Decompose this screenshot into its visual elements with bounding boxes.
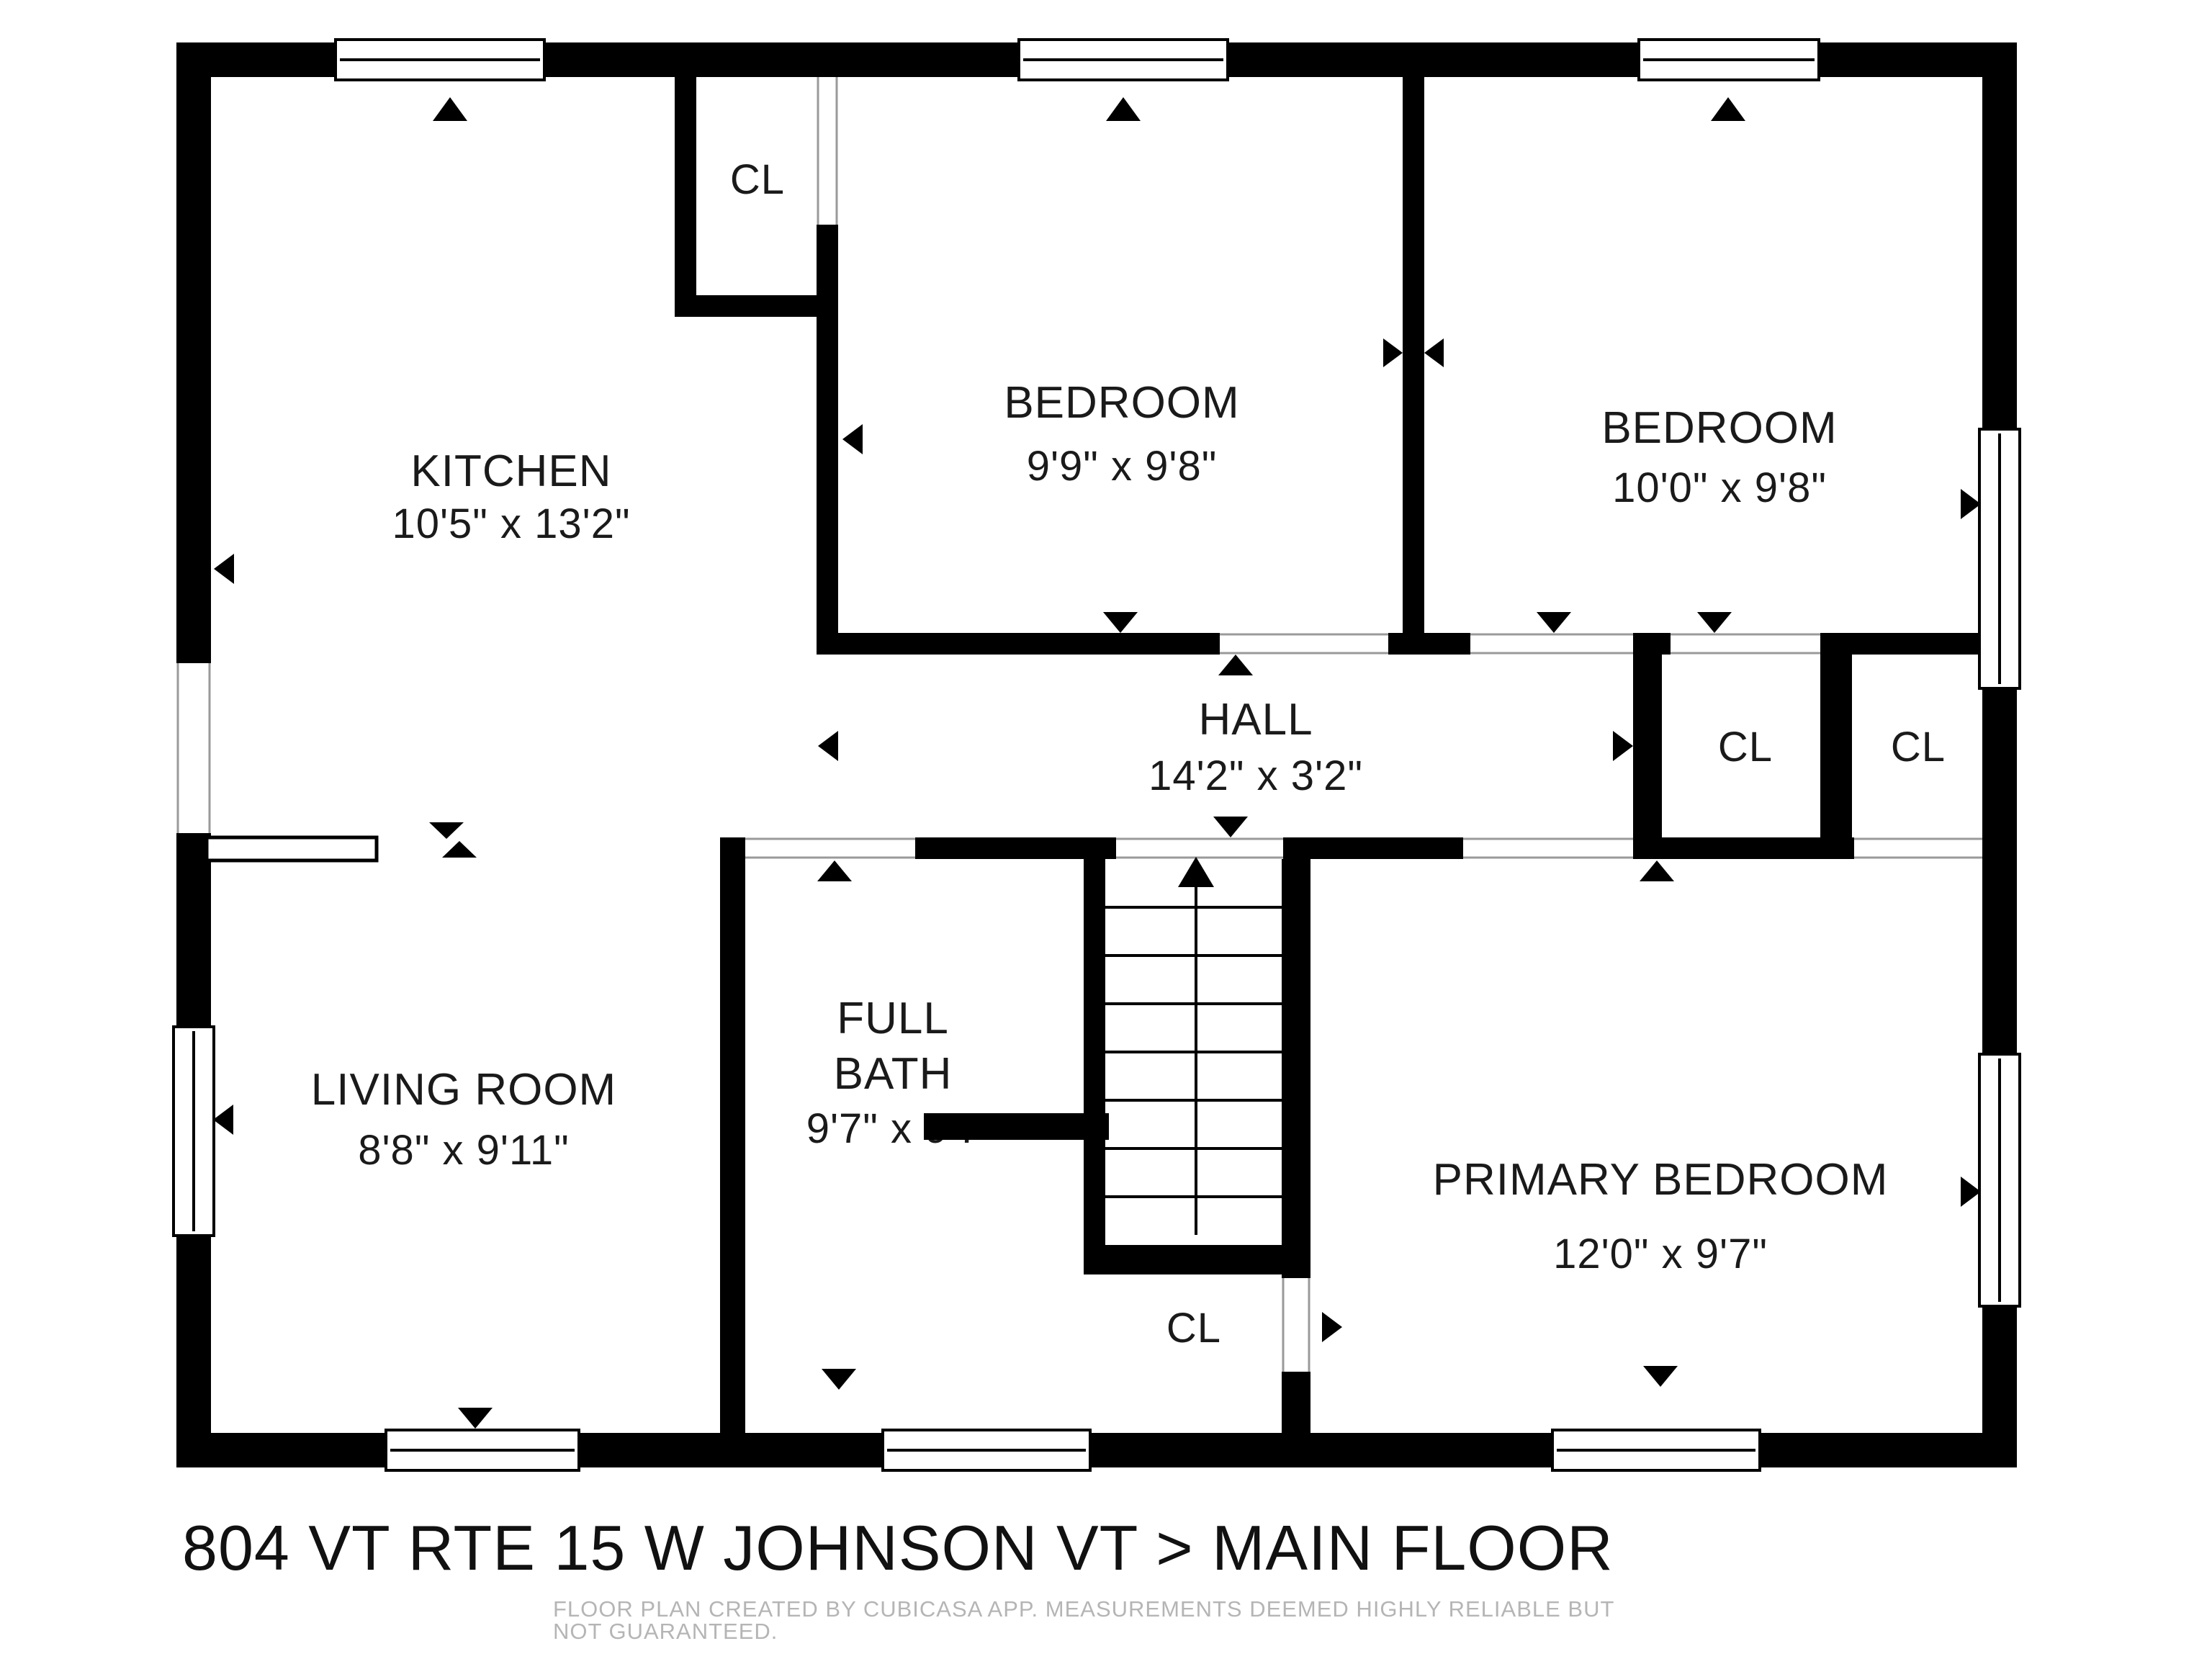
door-swing-icon (1961, 1177, 1981, 1207)
window-icon (386, 1430, 579, 1470)
door-swing-icon (1697, 612, 1732, 633)
hall-label: HALL (1198, 698, 1313, 742)
kitchen-counter (207, 837, 377, 860)
bedroom-top-dims: 9'9" x 9'8" (1027, 446, 1218, 487)
bedroom-top-label: BEDROOM (1004, 381, 1239, 426)
window-icon (1979, 1054, 2020, 1306)
page-title: 804 VT RTE 15 W JOHNSON VT > MAIN FLOOR (182, 1516, 1614, 1580)
floor-plan-drawing (0, 0, 2212, 1659)
bedroom-right-label: BEDROOM (1601, 406, 1837, 451)
window-icon (1552, 1430, 1760, 1470)
kitchen-label: KITCHEN (410, 449, 611, 494)
door-swing-icon (842, 424, 863, 454)
door-swing-icon (429, 822, 464, 839)
window-icon (1639, 40, 1819, 80)
door-swing-icon (1643, 1366, 1678, 1387)
living-room-dims: 8'8" x 9'11" (358, 1130, 570, 1172)
door-swing-icon (213, 1105, 233, 1135)
window-icon (883, 1430, 1090, 1470)
door-swing-icon (1711, 97, 1745, 121)
stairs-up-arrow-icon (1178, 857, 1214, 1235)
door-swing-icon (442, 841, 477, 858)
window-icon (1979, 429, 2020, 688)
door-swing-icon (433, 97, 467, 121)
door-swing-icon (1424, 338, 1444, 367)
door-swing-icon (1383, 338, 1403, 367)
full-bath-label-line1: FULL (837, 997, 949, 1041)
window-icon (1019, 40, 1228, 80)
kitchen-dims: 10'5" x 13'2" (392, 503, 630, 545)
living-room-label: LIVING ROOM (311, 1068, 616, 1112)
bath-wall-stub (924, 1113, 1109, 1140)
door-swing-icon (1322, 1312, 1342, 1342)
window-icon (336, 40, 544, 80)
bedroom-right-dims: 10'0" x 9'8" (1612, 467, 1827, 509)
door-swing-icon (1103, 612, 1138, 633)
staircase (1105, 857, 1290, 1235)
hall-closet-right-label: CL (1891, 727, 1946, 768)
window-icon (174, 1027, 214, 1236)
door-swing-icon (1613, 731, 1633, 761)
door-swing-icon (214, 554, 234, 584)
door-swing-icon (1961, 489, 1981, 519)
door-swing-icon (1640, 860, 1674, 881)
door-swing-icon (1218, 655, 1253, 675)
door-swing-icon (817, 860, 852, 881)
full-bath-label-line2: BATH (834, 1052, 953, 1097)
hall-closet-left-label: CL (1718, 727, 1773, 768)
door-swing-icon (1537, 612, 1571, 633)
hall-dims: 14'2" x 3'2" (1148, 755, 1363, 797)
door-swing-icon (818, 731, 838, 761)
primary-bedroom-label: PRIMARY BEDROOM (1433, 1158, 1889, 1202)
door-swing-icon (822, 1369, 856, 1390)
floor-plan-page: KITCHEN 10'5" x 13'2" CL BEDROOM 9'9" x … (0, 0, 2212, 1659)
top-closet-label: CL (730, 159, 785, 201)
under-stairs-closet-label: CL (1166, 1308, 1221, 1349)
door-swing-icon (1106, 97, 1141, 121)
footer-disclaimer: FLOOR PLAN CREATED BY CUBICASA APP. MEAS… (553, 1598, 1659, 1642)
door-swing-icon (1213, 817, 1248, 837)
primary-bedroom-dims: 12'0" x 9'7" (1553, 1233, 1768, 1275)
door-swing-icon (458, 1408, 493, 1429)
